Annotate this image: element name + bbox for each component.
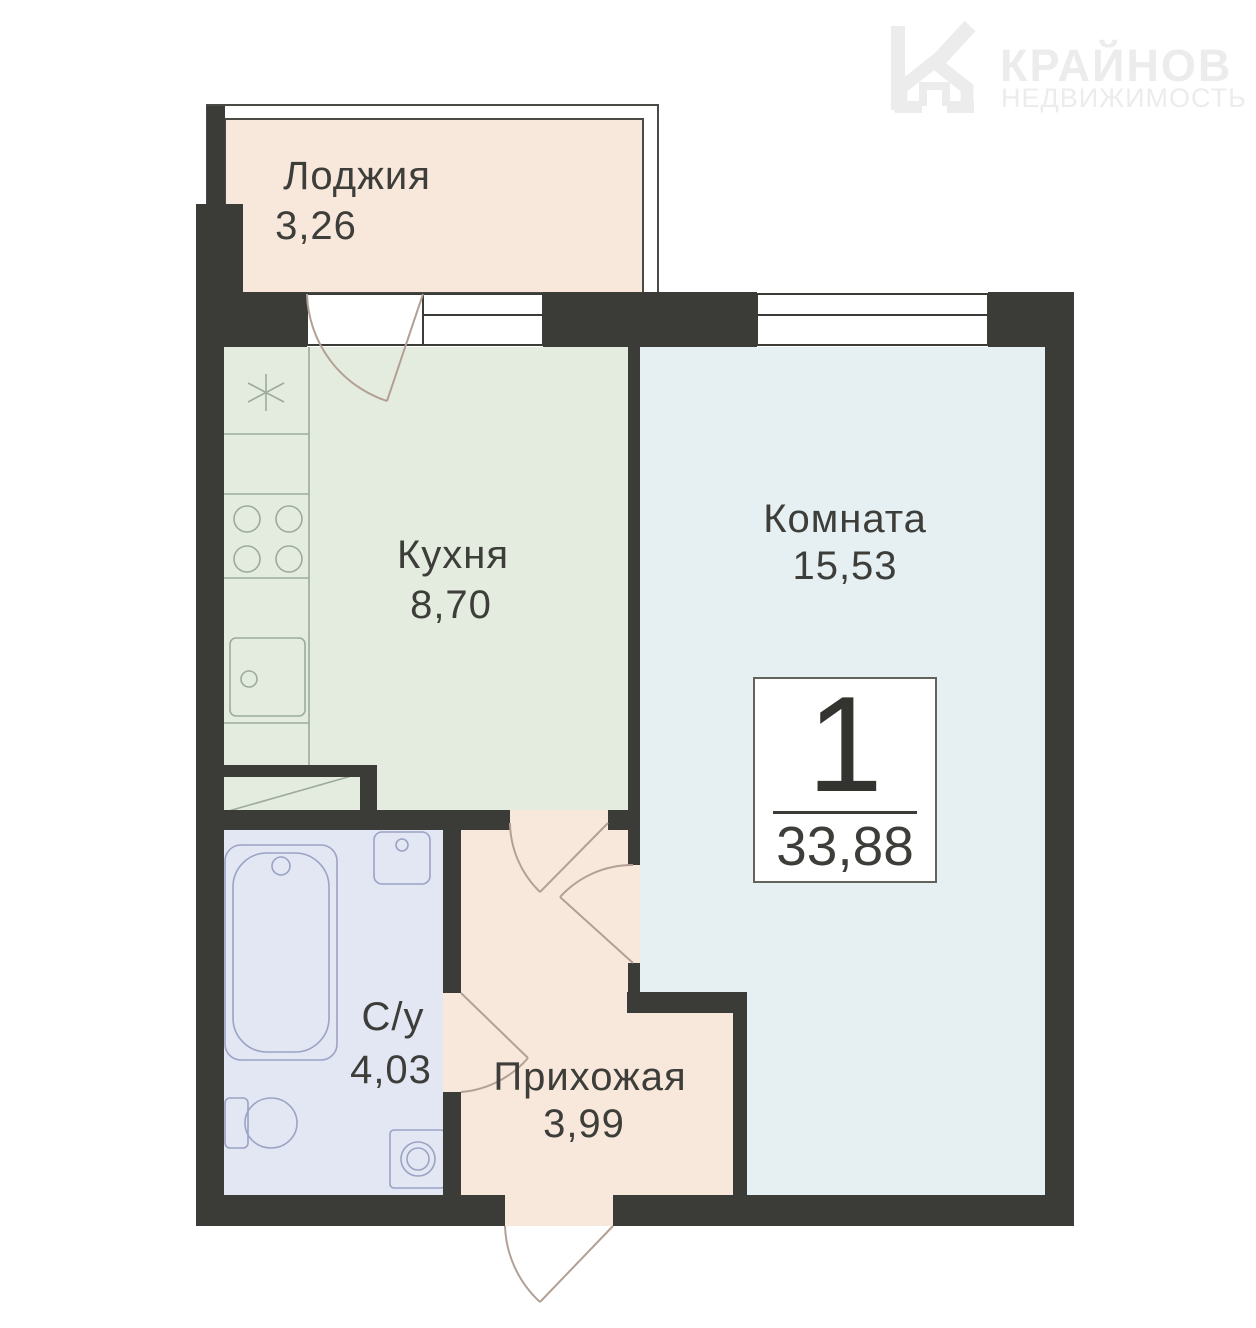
wall bbox=[627, 992, 747, 1013]
balcony-door-opening bbox=[307, 294, 423, 345]
wall bbox=[224, 765, 377, 777]
wall bbox=[628, 963, 640, 993]
floor-plan: Лоджия 3,26 Кухня 8,70 Комната 15,53 С/у… bbox=[0, 0, 1256, 1328]
wall bbox=[207, 106, 225, 205]
wall bbox=[733, 1013, 747, 1195]
living-room-window bbox=[757, 294, 988, 345]
wall bbox=[608, 810, 640, 830]
room-label-bathroom: С/у bbox=[362, 997, 425, 1037]
wall bbox=[628, 347, 640, 865]
room-area-bathroom: 4,03 bbox=[350, 1050, 432, 1090]
room-area-living: 15,53 bbox=[792, 546, 897, 586]
wall bbox=[196, 292, 224, 1226]
house-k-icon bbox=[886, 18, 986, 118]
room-label-hallway: Прихожая bbox=[493, 1057, 686, 1097]
total-area: 33,88 bbox=[776, 819, 914, 874]
wall bbox=[543, 292, 757, 347]
wall bbox=[196, 204, 243, 293]
summary-divider bbox=[773, 811, 917, 814]
wall bbox=[1045, 292, 1074, 1226]
wall bbox=[443, 830, 461, 993]
room-label-kitchen: Кухня bbox=[397, 535, 509, 575]
room-area-hallway: 3,99 bbox=[543, 1104, 625, 1144]
room-area-loggia: 3,26 bbox=[275, 206, 357, 246]
rooms-count: 1 bbox=[807, 681, 883, 807]
brand-logo: КРАЙНОВ НЕДВИЖИМОСТЬ bbox=[886, 18, 1238, 118]
wall bbox=[613, 1195, 1074, 1226]
wall bbox=[196, 1195, 505, 1226]
room-label-living: Комната bbox=[763, 499, 927, 539]
wall bbox=[196, 810, 510, 830]
apartment-summary-box: 1 33,88 bbox=[753, 677, 937, 883]
room-label-loggia: Лоджия bbox=[283, 156, 431, 196]
entry-door-arc bbox=[505, 1226, 613, 1302]
hallway-area-extension bbox=[628, 1013, 733, 1195]
wall bbox=[196, 292, 307, 347]
wall bbox=[443, 1092, 461, 1195]
brand-subtitle: НЕДВИЖИМОСТЬ bbox=[1001, 83, 1247, 114]
floor-plan-svg bbox=[0, 0, 1256, 1328]
wall bbox=[360, 765, 377, 812]
kitchen-window bbox=[423, 294, 543, 345]
kitchen-area bbox=[224, 347, 628, 812]
room-area-kitchen: 8,70 bbox=[410, 585, 492, 625]
